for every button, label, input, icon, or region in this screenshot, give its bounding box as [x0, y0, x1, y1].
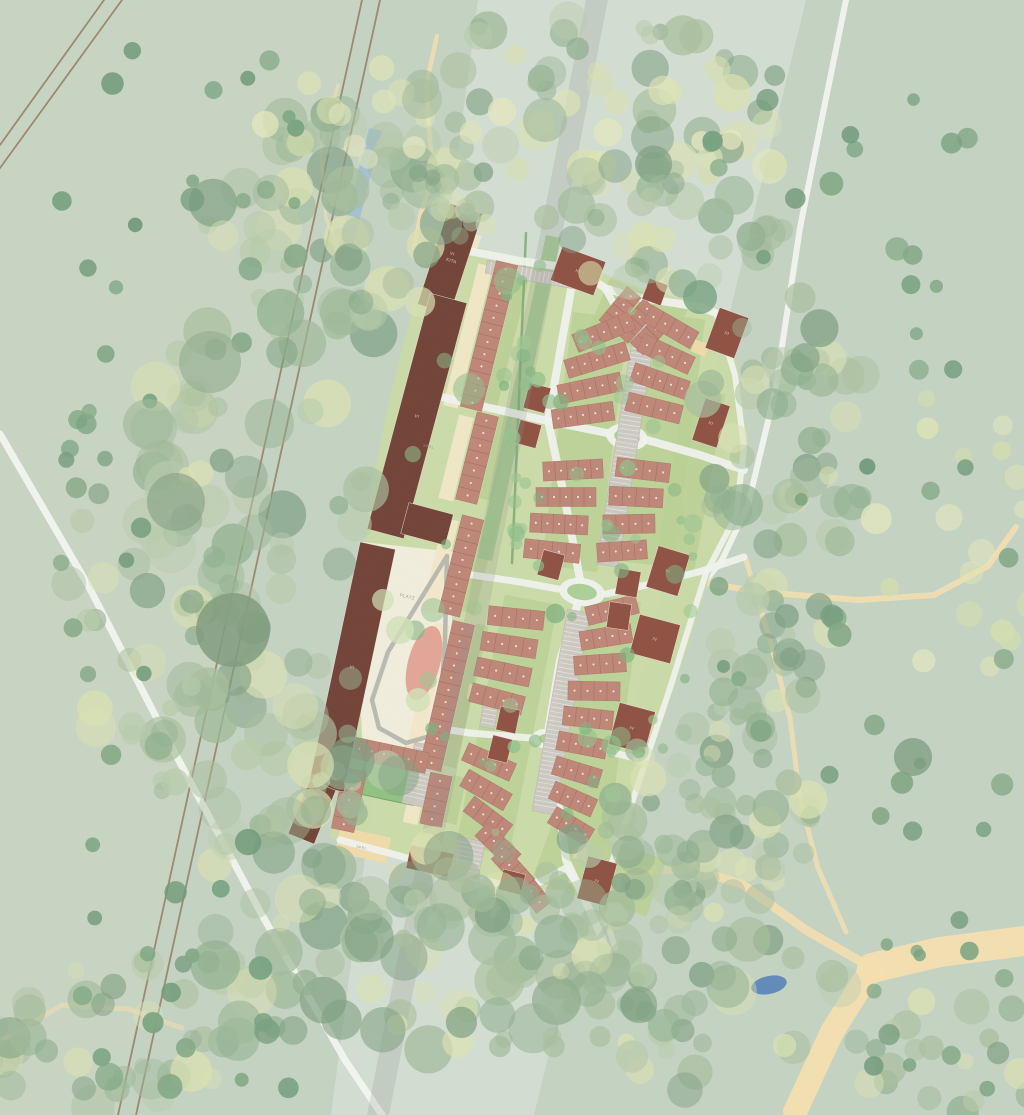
texture: [0, 0, 1024, 1115]
masterplan-site-plan: VIVIIIIIIIIIIIVIVIVIVIVVIKITATGSPPL.PLAT…: [0, 0, 1024, 1115]
screenshot-stage: VIVIIIIIIIIIIIVIVIVIVIVVIKITATGSPPL.PLAT…: [0, 0, 1024, 1115]
site-plan-canvas: VIVIIIIIIIIIIIVIVIVIVIVVIKITATGSPPL.PLAT…: [0, 0, 1024, 1115]
paper-texture: [0, 0, 1024, 1115]
